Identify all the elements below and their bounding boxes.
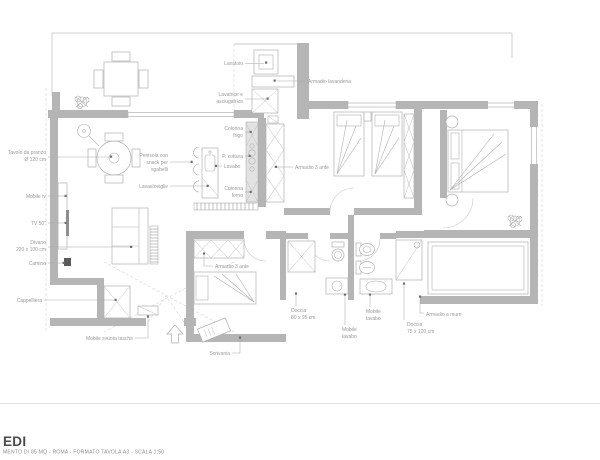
twin-wardrobe — [404, 114, 414, 198]
label-penisola: Penisola con snack per sgabelli — [139, 153, 192, 173]
svg-text:Mobile tv: Mobile tv — [26, 194, 47, 200]
svg-text:lavabo: lavabo — [366, 316, 381, 322]
flue-box — [268, 116, 278, 123]
hallway-wardrobe — [266, 124, 284, 202]
svg-text:asciugatrice: asciugatrice — [216, 99, 243, 105]
svg-text:Armadio 3 ante: Armadio 3 ante — [295, 165, 329, 171]
svg-text:Armadio a muro: Armadio a muro — [426, 312, 462, 318]
svg-text:Doccia: Doccia — [291, 308, 307, 314]
tv-cabinet — [58, 183, 67, 249]
drawing-sheet: Lavatoio Armadio lavanderia Lavatrice e … — [0, 0, 600, 460]
svg-text:Ø 120 cm: Ø 120 cm — [24, 157, 46, 163]
wall-wardrobe — [428, 242, 528, 294]
svg-text:Mobile: Mobile — [366, 309, 381, 315]
label-lavastoviglie: Lavastoviglie — [139, 184, 209, 190]
kitchen-counter — [246, 122, 258, 202]
vanity-1 — [326, 278, 348, 294]
label-mobile-lavabo-1: Mobile lavabo — [366, 294, 381, 323]
dining-table — [88, 133, 140, 183]
entrance-arrow-icon — [167, 325, 183, 343]
svg-text:Lavastoviglie: Lavastoviglie — [139, 184, 168, 190]
bidet — [356, 261, 375, 274]
label-camino: Camino — [29, 261, 65, 267]
svg-text:Divano: Divano — [30, 240, 46, 246]
svg-text:forno: forno — [232, 193, 244, 199]
radiator-living — [150, 226, 158, 264]
balcony-table — [94, 52, 148, 106]
sofa — [112, 208, 148, 264]
twin-bed-2 — [372, 112, 402, 176]
svg-text:Mobile: Mobile — [342, 327, 357, 333]
washer-dryer — [252, 89, 278, 113]
svg-text:TV 50": TV 50" — [31, 221, 46, 227]
svg-text:75 x 120 cm: 75 x 120 cm — [407, 329, 434, 335]
floor-plan: Lavatoio Armadio lavanderia Lavatrice e … — [0, 0, 600, 460]
svg-text:Lavatoio: Lavatoio — [224, 61, 243, 67]
svg-text:lavabo: lavabo — [342, 334, 357, 340]
svg-text:frigo: frigo — [233, 133, 243, 139]
svg-text:Tavolo da pranzo: Tavolo da pranzo — [8, 150, 46, 156]
svg-text:Colonna: Colonna — [224, 186, 243, 192]
sheet-title: EDI — [3, 434, 26, 449]
svg-text:Scrivania: Scrivania — [209, 351, 230, 357]
label-mobile-lavabo-2: Mobile lavabo — [342, 294, 357, 341]
svg-text:P. cottura: P. cottura — [222, 154, 243, 160]
svg-text:Colonna: Colonna — [224, 126, 243, 132]
bar-stools — [194, 147, 199, 192]
single-bed — [194, 272, 256, 304]
sheet-subtitle: MENTO DI 85 MQ - ROMA - FORMATO TAVOLA A… — [3, 450, 164, 456]
entry-console — [138, 306, 158, 315]
radiator-kitchen — [194, 203, 258, 210]
svg-text:snack per: snack per — [146, 160, 168, 166]
svg-text:Lavatrice e: Lavatrice e — [219, 92, 244, 98]
toilet-2 — [356, 243, 375, 256]
svg-text:Camino: Camino — [29, 261, 46, 267]
twin-nightstand — [364, 112, 371, 121]
label-doccia-1: Doccia 80 x 95 cm — [291, 293, 315, 322]
shower-1 — [288, 241, 315, 272]
plant-icon — [75, 96, 89, 109]
plant-icon — [508, 215, 522, 228]
svg-text:Cappelliera: Cappelliera — [17, 298, 43, 304]
svg-text:sgabelli: sgabelli — [151, 167, 168, 173]
svg-text:Penisola con: Penisola con — [139, 153, 168, 159]
master-bed — [446, 116, 508, 206]
bedroom2-wardrobe — [194, 240, 244, 258]
entry-closet — [104, 286, 130, 318]
toilet-1 — [332, 242, 344, 261]
svg-text:Doccia: Doccia — [407, 322, 423, 328]
svg-text:Mobile svuota tasche: Mobile svuota tasche — [86, 336, 133, 342]
svg-text:80 x 95 cm: 80 x 95 cm — [291, 315, 315, 321]
twin-bed-1 — [334, 112, 364, 176]
laundry-cabinet — [252, 76, 294, 87]
svg-text:Lavabo: Lavabo — [224, 164, 241, 170]
svg-text:Armadio lavanderia: Armadio lavanderia — [308, 79, 351, 85]
vanity-2 — [360, 279, 392, 294]
kitchen-island — [202, 148, 218, 198]
label-lavabo-cucina: Lavabo — [215, 164, 241, 170]
svg-text:220 x 100 cm: 220 x 100 cm — [16, 247, 46, 253]
shower-2 — [396, 240, 422, 280]
title-block: EDI MENTO DI 85 MQ - ROMA - FORMATO TAVO… — [0, 404, 600, 456]
label-tavolo: Tavolo da pranzo Ø 120 cm — [8, 150, 112, 163]
svg-text:Armadio 3 ante: Armadio 3 ante — [215, 264, 249, 270]
fireplace — [64, 258, 71, 266]
floor-lamp — [78, 125, 100, 147]
